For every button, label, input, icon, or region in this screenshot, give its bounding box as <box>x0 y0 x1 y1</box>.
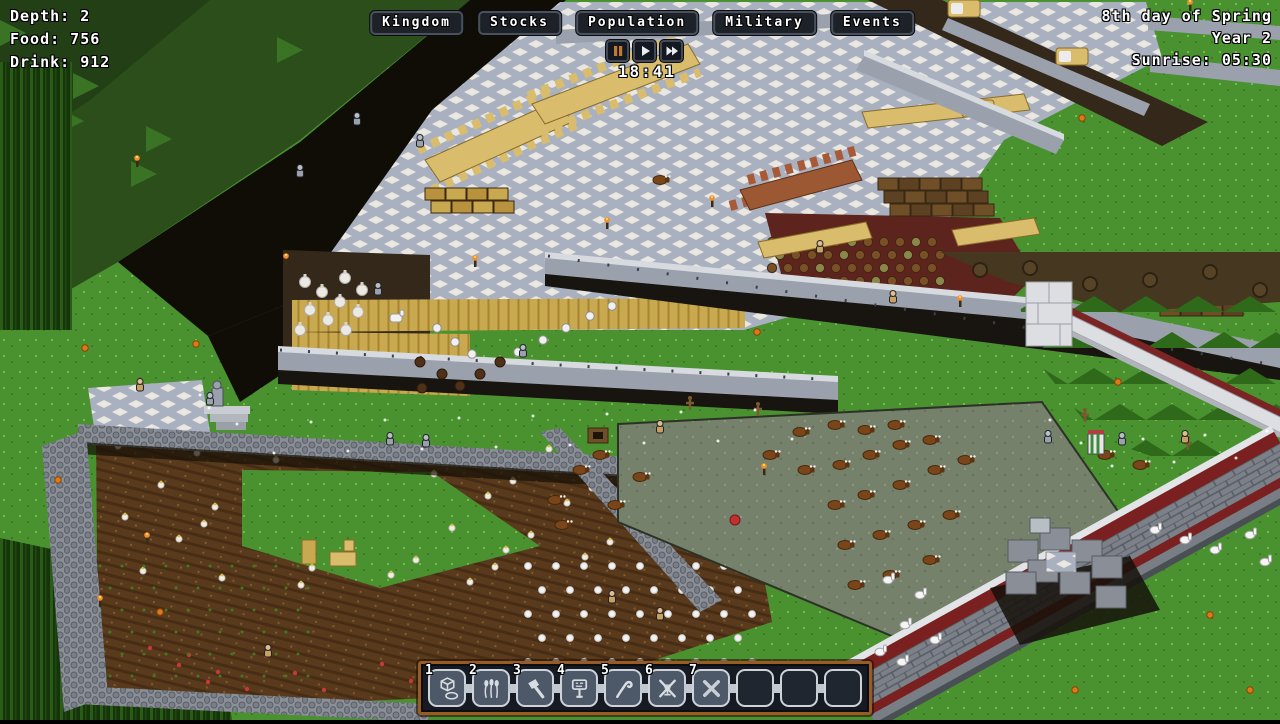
terrain-cube-icon <box>434 675 461 702</box>
crowbar-icon <box>610 675 637 702</box>
date-text: 8th day of Spring <box>1101 5 1272 27</box>
resource-stats: Depth: 2 Food: 756 Drink: 912 <box>10 5 110 74</box>
forbid-trap-icon <box>654 675 681 702</box>
military-button[interactable]: Military <box>713 11 816 35</box>
slot-number: 5 <box>601 663 610 678</box>
slot-number: 6 <box>645 663 654 678</box>
time-controls <box>606 40 683 62</box>
slot-number: 1 <box>425 663 434 678</box>
hotbar: 1 2 3 4 5 6 <box>418 661 872 715</box>
hotbar-slot-mechanism[interactable]: 5 <box>604 669 642 707</box>
drink-stat: Drink: 912 <box>10 51 110 74</box>
play-icon <box>638 44 652 58</box>
play-button[interactable] <box>633 40 656 62</box>
stocks-button[interactable]: Stocks <box>478 11 561 35</box>
pause-button[interactable] <box>606 40 629 62</box>
slot-number: 7 <box>689 663 698 678</box>
well <box>588 428 608 443</box>
game-world-viewport[interactable] <box>0 0 1280 720</box>
slot-number: 4 <box>557 663 566 678</box>
hotbar-slot-cancel[interactable]: 7 <box>692 669 730 707</box>
hotbar-slot-forbid[interactable]: 6 <box>648 669 686 707</box>
hotbar-slot-plants[interactable]: 2 <box>472 669 510 707</box>
fast-forward-icon <box>665 44 679 58</box>
hotbar-slot-empty-10[interactable] <box>824 669 862 707</box>
build-hammer-icon <box>522 675 549 702</box>
fast-forward-button[interactable] <box>660 40 683 62</box>
population-button[interactable]: Population <box>576 11 698 35</box>
food-stat: Food: 756 <box>10 28 110 51</box>
top-menu-bar: Kingdom Stocks Population Military Event… <box>370 11 914 35</box>
sunrise-text: Sunrise: 05:30 <box>1101 49 1272 71</box>
depth-stat: Depth: 2 <box>10 5 110 28</box>
cancel-x-icon <box>698 675 725 702</box>
hotbar-slot-stockpile[interactable]: 4 <box>560 669 598 707</box>
kingdom-button[interactable]: Kingdom <box>370 11 463 35</box>
slot-number: 2 <box>469 663 478 678</box>
hotbar-slot-build[interactable]: 3 <box>516 669 554 707</box>
strawberry <box>730 515 740 525</box>
game-clock: 18:41 <box>604 62 690 81</box>
calendar-info: 8th day of Spring Year 2 Sunrise: 05:30 <box>1101 5 1272 71</box>
plants-icon <box>478 675 505 702</box>
slot-number: 3 <box>513 663 522 678</box>
banner <box>1088 430 1104 454</box>
events-button[interactable]: Events <box>831 11 914 35</box>
pause-icon <box>611 44 625 58</box>
hotbar-slot-empty-9[interactable] <box>780 669 818 707</box>
hotbar-slot-empty-8[interactable] <box>736 669 774 707</box>
year-text: Year 2 <box>1101 27 1272 49</box>
stockpile-sign-icon <box>566 675 593 702</box>
hotbar-slot-terrain[interactable]: 1 <box>428 669 466 707</box>
